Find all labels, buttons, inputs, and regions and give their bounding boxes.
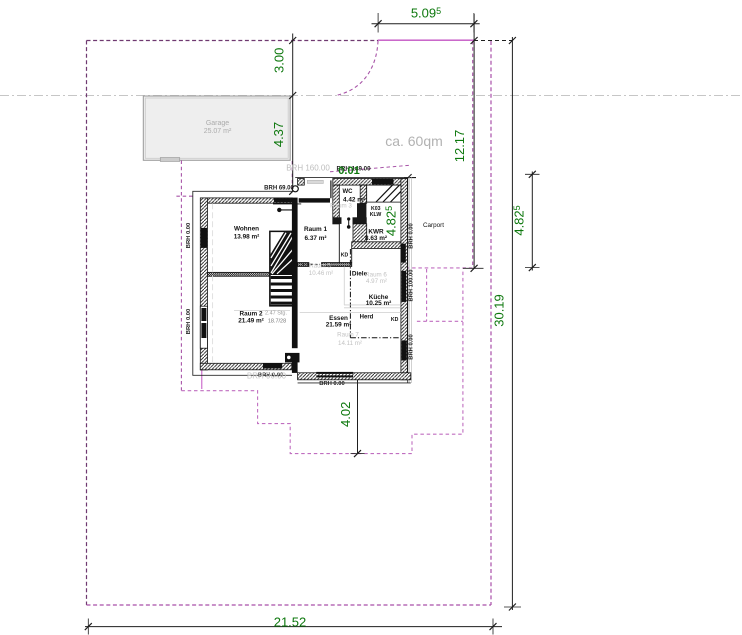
svg-text:25.07 m²: 25.07 m² — [204, 128, 232, 135]
svg-text:10.25 m²: 10.25 m² — [366, 300, 392, 307]
svg-text:Raum 1: Raum 1 — [304, 226, 328, 233]
svg-text:KD: KD — [391, 317, 399, 323]
svg-text:BRH 90.00: BRH 90.00 — [247, 372, 287, 381]
svg-text:0.01: 0.01 — [338, 165, 359, 177]
svg-text:BRH 0.00: BRH 0.00 — [409, 334, 415, 359]
svg-text:WC: WC — [343, 189, 354, 195]
svg-text:Raum 5: Raum 5 — [309, 263, 331, 270]
svg-text:21.59 m²: 21.59 m² — [326, 322, 352, 329]
svg-text:Raum 2: Raum 2 — [239, 311, 263, 318]
svg-text:Garage: Garage — [206, 120, 229, 127]
svg-text:BRH 69.00: BRH 69.00 — [264, 186, 294, 192]
svg-text:Raum 7: Raum 7 — [337, 332, 359, 339]
svg-text:Herd: Herd — [360, 314, 374, 320]
svg-text:Wohnen: Wohnen — [234, 226, 259, 233]
svg-text:21.52: 21.52 — [274, 615, 307, 630]
svg-text:14.11 m²: 14.11 m² — [338, 340, 362, 347]
svg-text:18.7/28: 18.7/28 — [268, 319, 286, 325]
svg-text:21.49 m²: 21.49 m² — [238, 318, 264, 325]
svg-text:10.46 m²: 10.46 m² — [309, 270, 333, 277]
svg-text:4.02: 4.02 — [338, 402, 353, 427]
svg-text:12.17: 12.17 — [452, 130, 467, 163]
svg-text:BRH 0.00: BRH 0.00 — [319, 381, 344, 387]
svg-text:ca. 60qm: ca. 60qm — [385, 133, 443, 149]
svg-text:Raum 3: Raum 3 — [330, 203, 352, 210]
svg-text:BRH 0.00: BRH 0.00 — [186, 309, 192, 334]
svg-text:13.98 m²: 13.98 m² — [234, 234, 260, 241]
svg-text:BRH 0.00: BRH 0.00 — [186, 223, 192, 248]
svg-text:BRH 100.00: BRH 100.00 — [409, 270, 415, 302]
svg-text:KD: KD — [341, 253, 349, 259]
svg-text:2.47 Stg.: 2.47 Stg. — [265, 311, 287, 317]
svg-text:BRH 160.00: BRH 160.00 — [286, 164, 330, 173]
svg-text:4.97 m²: 4.97 m² — [366, 278, 387, 285]
svg-text:KLW: KLW — [370, 212, 382, 218]
svg-text:Carport: Carport — [423, 222, 444, 229]
svg-text:6.37 m²: 6.37 m² — [304, 235, 326, 242]
svg-text:BRH 0.00: BRH 0.00 — [409, 223, 415, 248]
svg-text:3.00: 3.00 — [272, 48, 287, 73]
svg-text:30.19: 30.19 — [492, 294, 507, 327]
svg-text:4.37: 4.37 — [271, 122, 286, 147]
svg-text:8.63 m²: 8.63 m² — [365, 235, 387, 242]
